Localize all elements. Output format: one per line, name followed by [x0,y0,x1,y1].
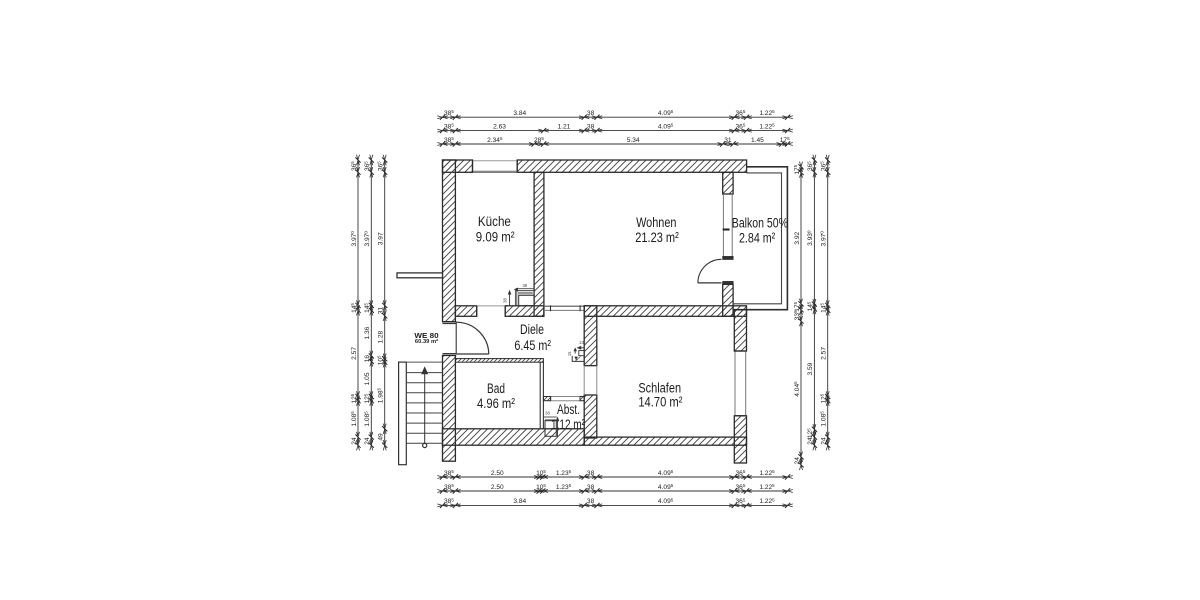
svg-text:Küche: Küche [478,214,511,230]
svg-text:38: 38 [587,484,595,491]
svg-text:24: 24 [821,437,828,445]
svg-text:2.84 m²: 2.84 m² [739,231,775,247]
svg-text:3.84: 3.84 [513,498,526,505]
svg-text:60.39 m²: 60.39 m² [415,338,438,345]
svg-text:38: 38 [587,498,595,505]
svg-text:24: 24 [794,457,801,465]
svg-text:3.84: 3.84 [513,110,526,117]
svg-text:Wohnen: Wohnen [636,215,676,231]
svg-text:3.97: 3.97 [378,232,385,245]
svg-text:9.09 m²: 9.09 m² [476,230,515,246]
svg-text:3.59: 3.59 [807,362,814,375]
svg-text:38: 38 [545,410,550,415]
svg-text:15: 15 [567,351,572,356]
svg-text:14.70 m²: 14.70 m² [638,395,682,411]
svg-text:Balkon 50%: Balkon 50% [732,216,788,232]
svg-text:16: 16 [364,355,371,363]
svg-text:1.36: 1.36 [364,326,371,339]
svg-text:24: 24 [807,437,814,445]
svg-text:1.12 m²: 1.12 m² [551,417,585,433]
svg-text:5.34: 5.34 [627,137,640,144]
svg-text:38: 38 [522,283,527,288]
svg-text:6.45 m²: 6.45 m² [514,338,551,354]
svg-text:3.92: 3.92 [794,231,801,244]
svg-text:Abst.: Abst. [557,402,580,418]
svg-text:24: 24 [364,437,371,445]
svg-text:2.63: 2.63 [493,123,506,130]
svg-text:49: 49 [378,433,385,441]
svg-text:38: 38 [587,470,595,477]
svg-text:2.50: 2.50 [491,470,504,477]
svg-text:38: 38 [587,110,595,117]
svg-text:1.21: 1.21 [557,123,570,130]
svg-text:1.28: 1.28 [378,330,385,343]
svg-text:4.96 m²: 4.96 m² [477,396,515,412]
svg-text:Bad: Bad [487,381,505,397]
svg-text:2.50: 2.50 [491,484,504,491]
svg-text:2.57: 2.57 [351,347,358,360]
svg-text:38: 38 [503,298,508,303]
svg-text:13: 13 [579,340,584,345]
svg-text:24: 24 [351,437,358,445]
svg-text:Diele: Diele [520,322,544,338]
svg-text:31: 31 [378,307,385,315]
svg-text:31: 31 [724,137,732,144]
svg-text:38: 38 [587,123,595,130]
svg-text:1.45: 1.45 [751,137,764,144]
svg-text:2.57: 2.57 [821,347,828,360]
svg-text:1.05: 1.05 [364,372,371,385]
svg-text:21.23 m²: 21.23 m² [635,230,679,246]
